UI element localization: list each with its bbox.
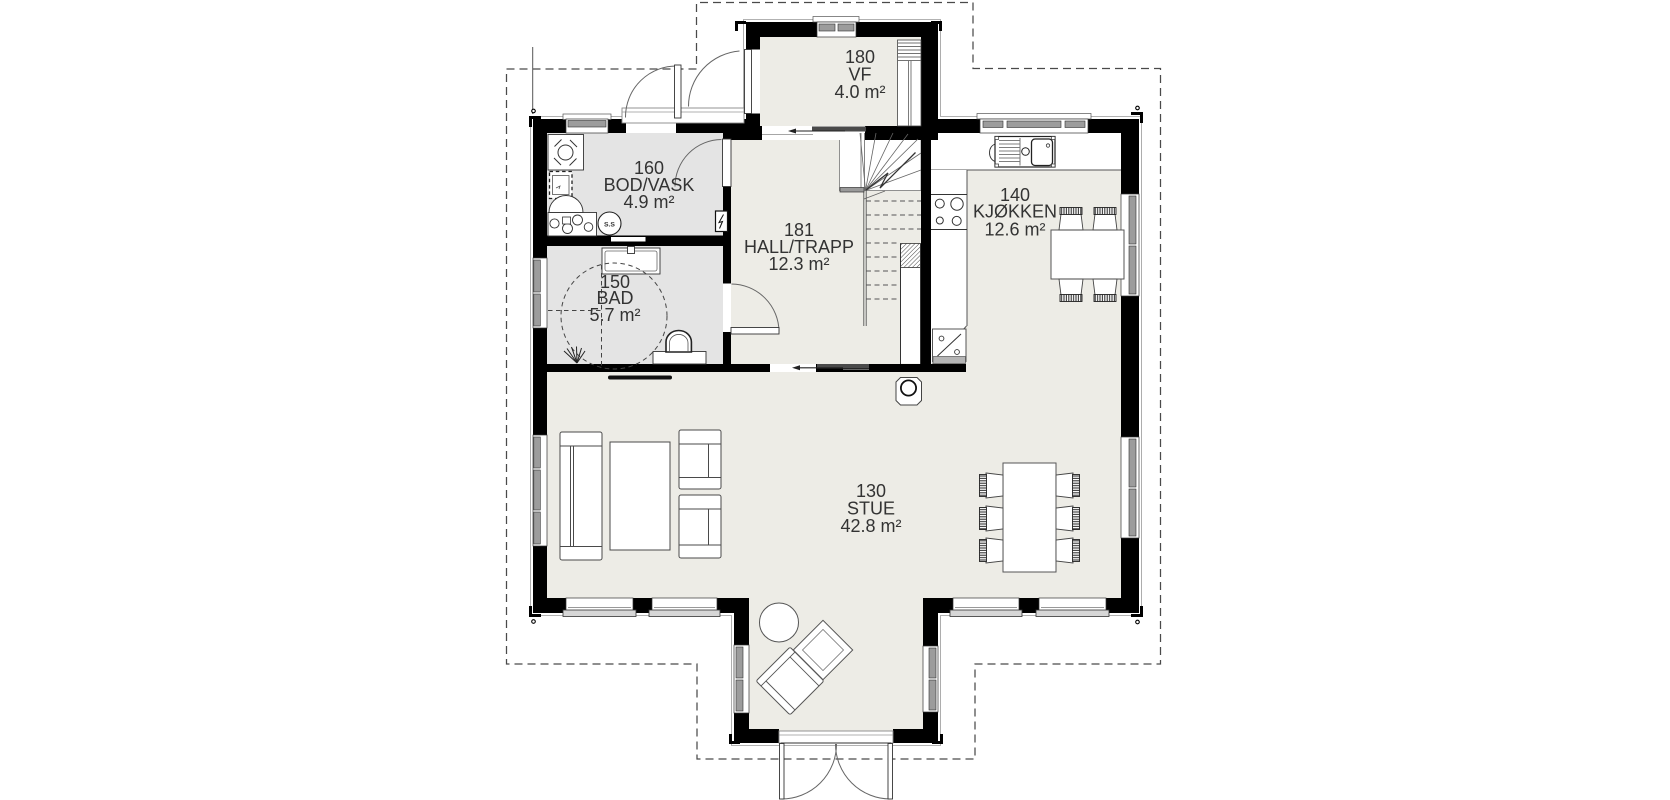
- svg-text:S.S: S.S: [604, 222, 615, 229]
